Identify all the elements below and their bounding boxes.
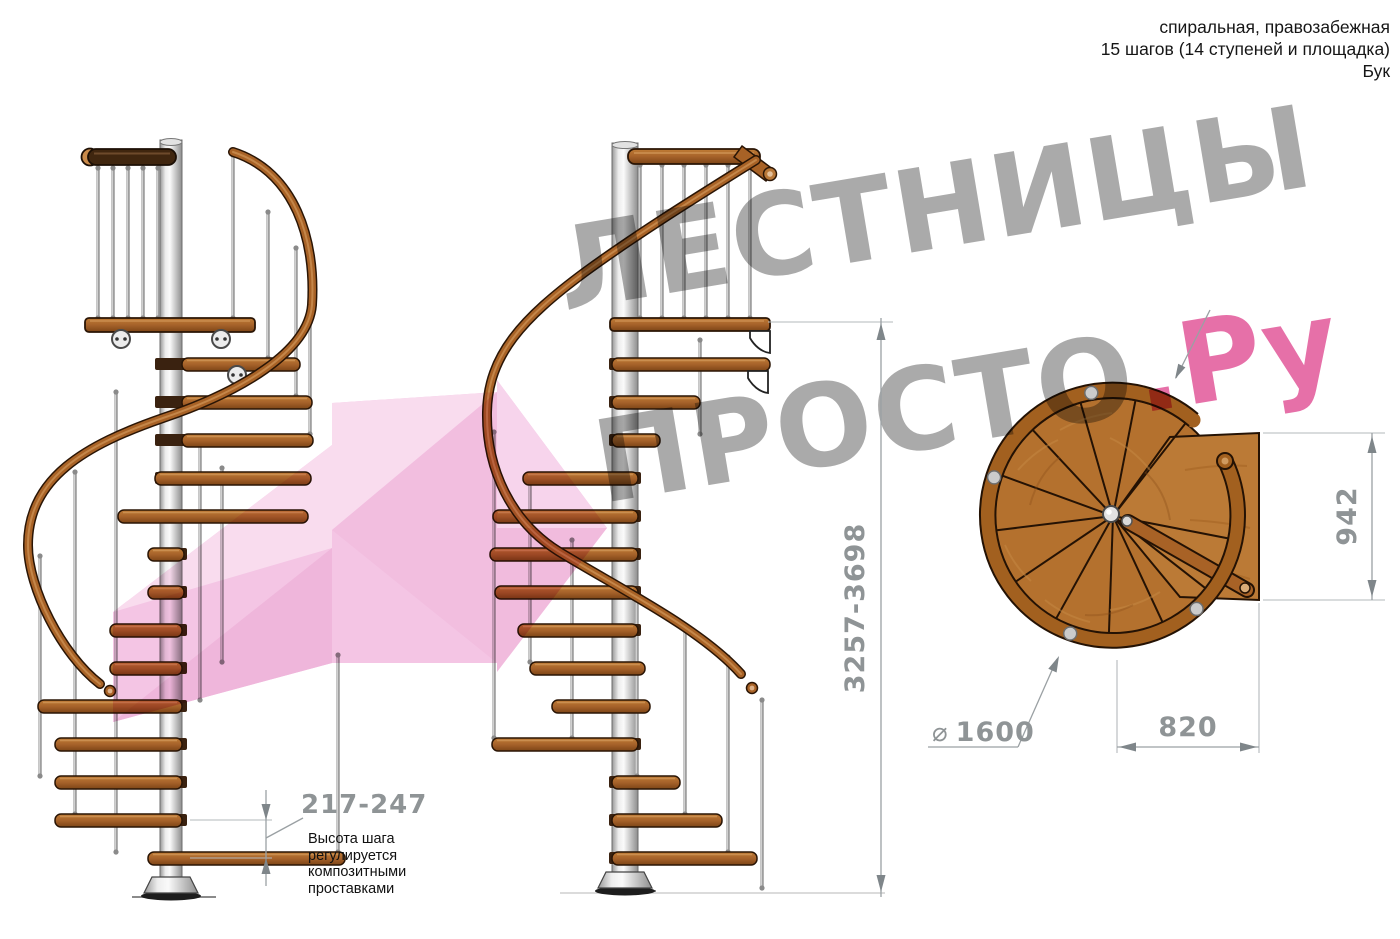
dim-landing-width: 820 <box>1117 603 1259 753</box>
dim-arrow-down-icon <box>1368 580 1377 597</box>
dim-arrow-up-icon <box>1368 436 1377 453</box>
dim-arrow-left-icon <box>1119 743 1136 752</box>
leader-arrow-icon <box>1175 364 1185 379</box>
title-block: спиральная, правозабежная 15 шагов (14 с… <box>1101 16 1390 82</box>
title-material: Бук <box>1101 60 1390 82</box>
dim-total-height: 3257-3698 <box>768 318 893 897</box>
title-steps: 15 шагов (14 ступеней и площадка) <box>1101 38 1390 60</box>
dim-arrow-up-icon <box>262 858 271 874</box>
step-height-note: Высота шага регулируется композитными пр… <box>308 831 406 897</box>
plan-leader <box>1175 310 1210 379</box>
drawing-canvas: ЛЕСТНИЦЫ ПРОСТО.Ру 3257-3698 942 <box>0 0 1400 939</box>
dim-diameter: ⌀1600 <box>928 656 1059 748</box>
dim-arrow-down-icon <box>877 875 886 892</box>
dim-arrow-right-icon <box>1240 743 1257 752</box>
dim-landing-height: 942 <box>1263 433 1385 600</box>
dim-diameter-label: ⌀1600 <box>932 717 1035 748</box>
dimension-layer: 3257-3698 942 820 ⌀1600 <box>0 0 1400 939</box>
leader-arrow-icon <box>1048 656 1059 673</box>
title-type: спиральная, правозабежная <box>1101 16 1390 38</box>
dim-total-height-label: 3257-3698 <box>840 523 871 694</box>
dim-arrow-up-icon <box>877 323 886 340</box>
dim-arrow-down-icon <box>262 804 271 820</box>
dim-step-height-label: 217-247 <box>301 790 427 820</box>
dim-landing-height-label: 942 <box>1332 486 1363 545</box>
dim-landing-width-label: 820 <box>1158 712 1217 743</box>
